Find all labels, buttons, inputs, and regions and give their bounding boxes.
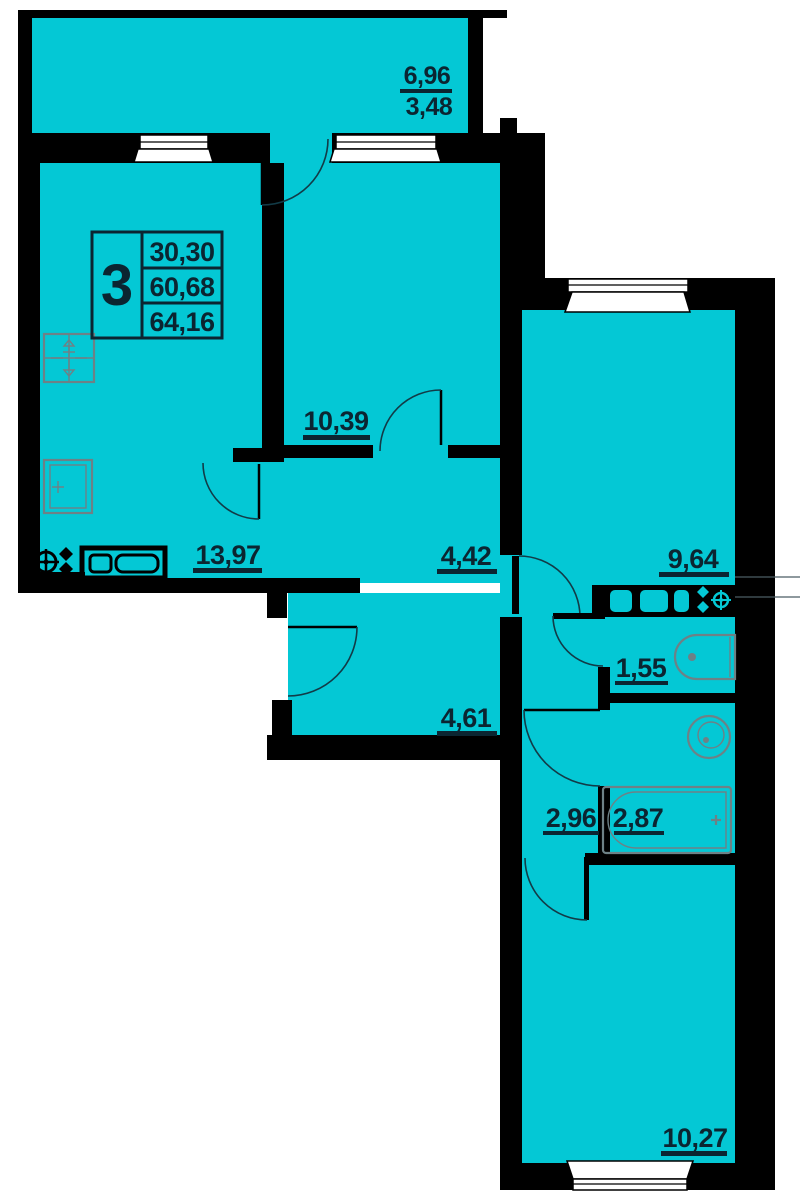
- kitchen-area-underline: [193, 568, 262, 573]
- wall-notch: [500, 118, 517, 135]
- hall-top-area-text: 4,42: [441, 541, 492, 571]
- window-balcony-left: [134, 135, 213, 162]
- balcony-right-wall: [468, 10, 483, 135]
- living-area-label: 30,30: [149, 237, 214, 267]
- bath-area-underline: [614, 831, 664, 835]
- label-room-right-bottom: 10,27: [661, 1123, 728, 1156]
- wc-bath-divider-wall: [598, 693, 735, 703]
- bath-bottom-wall: [585, 853, 735, 865]
- label-hall-top: 4,42: [437, 541, 497, 574]
- hall-right-wall-a: [598, 667, 610, 710]
- hall-right-area-underline: [543, 831, 599, 835]
- right-block-left-wall: [500, 735, 522, 1190]
- room-right-bottom-area-underline: [661, 1151, 727, 1156]
- label-room-mid: 10,39: [303, 406, 370, 440]
- room-right-bottom-area-text: 10,27: [662, 1123, 727, 1153]
- floor-plan-canvas: 3 30,30 60,68 64,16 6,96 3,48 13,97 10,3…: [0, 0, 800, 1203]
- junction-door-leaf: [512, 556, 519, 614]
- room-mid-bottom-wall-left: [284, 445, 373, 458]
- entry-hall-bottom-wall: [267, 735, 510, 760]
- label-kitchen: 13,97: [193, 540, 262, 573]
- kitchen-area-text: 13,97: [195, 540, 260, 570]
- balcony-door-gap: [270, 133, 332, 163]
- kitchen-bottom-wall: [18, 578, 360, 593]
- room-bottom-door-leaf: [584, 857, 589, 920]
- right-wall-upper: [500, 133, 545, 278]
- balcony-left-wall: [18, 10, 32, 135]
- label-balcony: 6,96 3,48: [400, 62, 453, 121]
- hall-top-area-underline: [437, 569, 497, 574]
- room-right-top-area-underline: [659, 572, 729, 577]
- label-bath: 2,87: [613, 803, 664, 835]
- label-wc: 1,55: [615, 653, 668, 685]
- hall-right-area-text: 2,96: [546, 803, 597, 833]
- room-count-label: 3: [101, 253, 133, 318]
- wc-area-text: 1,55: [616, 653, 667, 683]
- window-balcony-right: [330, 135, 441, 162]
- balcony-area-counted: 3,48: [406, 93, 453, 121]
- right-outer-wall: [735, 310, 775, 1190]
- entry-jamb-bottom: [272, 700, 292, 735]
- room-mid-bottom-wall-right: [448, 445, 503, 458]
- junction-wall-upper: [500, 278, 522, 555]
- window-bottom: [567, 1161, 693, 1190]
- left-outer-wall: [18, 163, 40, 593]
- label-hall-entry: 4,61: [437, 703, 497, 736]
- floor-area-label: 60,68: [149, 272, 215, 302]
- kitchen-divider-wall: [262, 163, 284, 448]
- total-area-label: 64,16: [149, 307, 215, 337]
- kitchen-divider-stub: [233, 448, 284, 462]
- bath-area-text: 2,87: [613, 803, 664, 833]
- label-hall-right: 2,96: [543, 803, 599, 835]
- balcony-area-full: 6,96: [404, 62, 451, 90]
- room-mid-area-underline: [303, 435, 370, 440]
- right-block-floor: [522, 310, 735, 1163]
- hall-entry-area-underline: [437, 731, 497, 736]
- hall-entry-area-text: 4,61: [441, 703, 492, 733]
- balcony-top-wall: [18, 10, 507, 18]
- wc-area-underline: [615, 681, 668, 685]
- window-right-top: [565, 279, 690, 312]
- floor-plan-drawing: 3 30,30 60,68 64,16 6,96 3,48 13,97 10,3…: [0, 0, 800, 1203]
- room-right-top-area-text: 9,64: [668, 544, 719, 574]
- room-mid-area-text: 10,39: [303, 406, 369, 436]
- junction-wall-lower: [500, 617, 522, 735]
- entry-jamb-top: [267, 585, 287, 618]
